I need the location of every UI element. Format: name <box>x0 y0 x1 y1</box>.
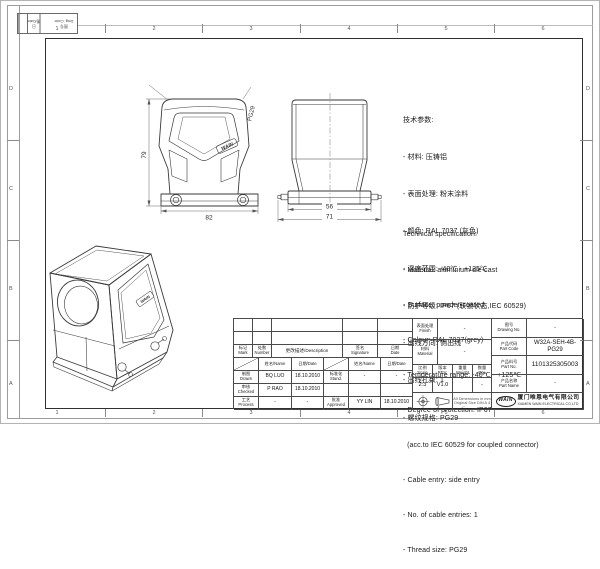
rev-cell <box>272 319 343 332</box>
part-code-value: W32A-SEH-4B-PG29 <box>527 338 584 356</box>
part-no-label: 产品料号 Part No. <box>492 356 527 375</box>
rev-label: 版本 REV. <box>433 365 453 378</box>
approved-name: YY LIN <box>349 397 381 410</box>
diagonal-cell <box>234 358 259 371</box>
rev-cell <box>234 319 253 332</box>
spec-line: - No. of cable entries: 1 <box>403 510 539 522</box>
thread-size-label: PG29 <box>247 105 257 122</box>
part-no-value: 1101325305003 <box>527 356 584 375</box>
dim-outer-label: 71 <box>326 214 334 221</box>
wain-logo-titleblock: WAIN <box>496 396 516 407</box>
spec-line: - Surface: powder-coated <box>403 300 539 312</box>
dimension-note: All Dimensions in mm Original Size DIN A… <box>453 393 492 410</box>
first-angle-projection-icon <box>414 394 452 409</box>
standardized-date: - <box>381 371 413 384</box>
company-name-en: XIAMEN WAIN ELECTRICAL CO.LTD <box>518 403 579 407</box>
part-code-label: 产品代码 Part Code <box>492 338 527 356</box>
approved-label: 批准 Approved <box>324 397 349 410</box>
spec-line: - Thread size: PG29 <box>403 545 539 557</box>
company-name-cn: 厦门唯恩电气有限公司 <box>518 395 580 401</box>
qty-value: - <box>473 378 492 393</box>
approved-date: 18.10.2010 <box>381 397 413 410</box>
scale-value: 2:3 <box>413 378 433 393</box>
svg-text:WAIN: WAIN <box>139 294 151 304</box>
process-date: - <box>292 397 324 410</box>
spec-line: - 表面处理: 粉末涂料 <box>403 189 526 201</box>
empty-cell <box>381 384 413 397</box>
material-value: - <box>438 340 492 365</box>
material-label: 材料 Material <box>413 340 438 365</box>
date-header: 日期/Date <box>381 358 413 371</box>
title-block: 标记 Mark 处数 Number 更改描述/Description 签名 Si… <box>233 318 583 409</box>
name-header: 姓名/Name <box>349 358 381 371</box>
dim-height-label: 79 <box>141 151 148 159</box>
empty-cell <box>349 384 381 397</box>
rev-description-header: 更改描述/Description <box>272 345 343 358</box>
specs-cn-title: 技术参数: <box>403 115 526 127</box>
isometric-view: WAIN <box>50 246 173 391</box>
dim-inner-label: 56 <box>326 204 334 211</box>
weight-label: 重量 Weight <box>453 365 473 378</box>
spec-line: - Material: aluminium die-cast <box>403 265 539 277</box>
projection-symbol-cell <box>413 393 453 410</box>
spec-line: (acc.to IEC 60529 for coupled connector) <box>403 440 539 452</box>
drawn-label: 制图 Drawn <box>234 371 259 384</box>
drawn-name: BQ LUO <box>259 371 292 384</box>
rev-cell <box>253 332 272 345</box>
qty-label: 数量 Qty. <box>473 365 492 378</box>
rev-mark-header: 标记 Mark <box>234 345 253 358</box>
rev-signature-header: 签名 Signature <box>343 345 378 358</box>
rev-cell <box>234 332 253 345</box>
dim-79 <box>146 99 170 206</box>
date-header: 日期/Date <box>292 358 324 371</box>
scale-label: 比例 Scale <box>413 365 433 378</box>
standardized-name: - <box>349 371 381 384</box>
diagonal-cell <box>324 358 349 371</box>
rev-cell <box>378 319 413 332</box>
spec-line: - Cable entry: side entry <box>403 475 539 487</box>
rev-date-header: 日期 Date <box>378 345 413 358</box>
finish-label: 表面处理 Finish <box>413 319 438 340</box>
specs-en-title: Technical specification: <box>403 229 539 241</box>
front-view: WAIN PG29 79 82 <box>141 85 258 222</box>
rev-value: V1.0 <box>433 378 453 393</box>
side-view: 56 71 <box>278 93 381 222</box>
drawing-no-label: 图号 Drawing No. <box>492 319 527 338</box>
process-name: - <box>259 397 292 410</box>
rev-cell <box>378 332 413 345</box>
finish-value: - <box>438 319 492 340</box>
name-header: 姓名/Name <box>259 358 292 371</box>
part-name-label: 产品名称 Part Name <box>492 375 527 393</box>
dim-82 <box>161 206 258 214</box>
empty-cell <box>324 384 349 397</box>
rev-cell <box>272 332 343 345</box>
drawn-date: 18.10.2010 <box>292 371 324 384</box>
part-name-value: - <box>527 375 584 393</box>
rev-cell <box>343 332 378 345</box>
standardized-label: 标准化 Stand. <box>324 371 349 384</box>
checked-name: P RAO <box>259 384 292 397</box>
company-cell: WAIN 厦门唯恩电气有限公司 XIAMEN WAIN ELECTRICAL C… <box>492 393 584 410</box>
checked-label: 审核 Checked <box>234 384 259 397</box>
rev-cell <box>253 319 272 332</box>
checked-date: 18.10.2010 <box>292 384 324 397</box>
wain-logo-iso: WAIN <box>136 291 155 307</box>
drawing-no-value: - <box>527 319 584 338</box>
rev-cell <box>343 319 378 332</box>
weight-value <box>453 378 473 393</box>
process-label: 工艺 Process <box>234 397 259 410</box>
dim-width-label: 82 <box>205 215 213 222</box>
rev-number-header: 处数 Number <box>253 345 272 358</box>
spec-line: - 材料: 压铸铝 <box>403 152 526 164</box>
